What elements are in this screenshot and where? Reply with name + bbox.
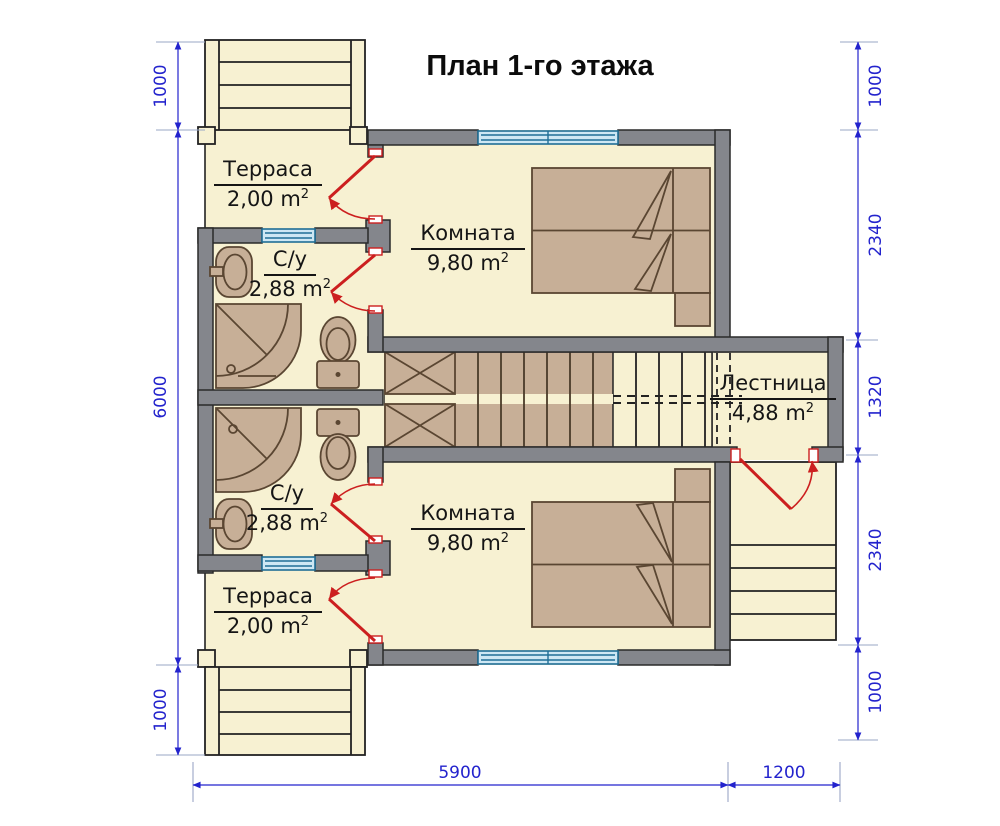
wall-segment	[368, 130, 478, 145]
toilet	[317, 409, 359, 480]
room-label-wc-top: С/у 2,88 m2	[215, 248, 365, 301]
wall-segment	[618, 650, 730, 665]
wall-segment	[315, 228, 368, 243]
porch-post	[350, 650, 367, 667]
stair-gap	[385, 394, 613, 404]
room-area-value: 2,00 m	[227, 614, 301, 638]
room-area: 9,80 m2	[390, 252, 546, 276]
dim-value: 2340	[866, 213, 886, 256]
room-name: Терраса	[214, 585, 322, 613]
window	[262, 557, 315, 570]
steps-outline	[205, 667, 365, 755]
staircase	[385, 352, 742, 447]
wall-pier	[366, 220, 390, 252]
dim-value: 1000	[866, 670, 886, 713]
room-area-sup: 2	[323, 277, 331, 292]
wall-segment	[368, 310, 383, 352]
room-area: 2,00 m2	[190, 615, 346, 639]
window	[262, 229, 315, 242]
room-name: Терраса	[214, 158, 322, 186]
dimension-right: 1000 2340 1320 2340 1000	[858, 42, 886, 740]
wall-segment	[368, 650, 478, 665]
room-area-sup: 2	[320, 511, 328, 526]
window	[478, 131, 618, 144]
wall-segment	[715, 462, 730, 665]
dim-value: 1000	[151, 64, 171, 107]
room-area: 4,88 m2	[700, 402, 846, 426]
room-label-room-bottom: Комната 9,80 m2	[390, 502, 546, 555]
porch-post	[198, 650, 215, 667]
wall-segment	[715, 130, 730, 352]
window	[478, 651, 618, 664]
room-label-terrace-bottom: Терраса 2,00 m2	[190, 585, 346, 638]
floor-plan-drawing: 1000 6000 1000 1000 2340 1320 2340 1000 …	[0, 0, 1000, 826]
page-title: План 1-го этажа	[360, 50, 720, 83]
nightstand	[675, 469, 710, 502]
dim-value: 1000	[866, 64, 886, 107]
floor-plan-page: 1000 6000 1000 1000 2340 1320 2340 1000 …	[0, 0, 1000, 826]
wall-segment	[618, 130, 730, 145]
room-area-sup: 2	[301, 614, 309, 629]
dim-value: 6000	[151, 375, 171, 418]
room-name: Комната	[411, 222, 524, 250]
room-name: Комната	[411, 502, 524, 530]
room-area-value: 2,88 m	[246, 511, 320, 535]
room-label-stairs: Лестница 4,88 m2	[700, 372, 846, 425]
room-area-value: 4,88 m	[732, 401, 806, 425]
stair-flights-above-cut	[613, 352, 712, 447]
wall-segment	[368, 337, 843, 352]
room-label-terrace-top: Терраса 2,00 m2	[190, 158, 346, 211]
dimension-bottom: 5900 1200	[193, 763, 840, 785]
toilet	[317, 317, 359, 388]
dim-value: 2340	[866, 528, 886, 571]
room-area: 9,80 m2	[390, 532, 546, 556]
dim-value: 5900	[438, 763, 481, 783]
wall-segment	[368, 643, 383, 665]
room-name: Лестница	[710, 372, 835, 400]
room-area-value: 9,80 m	[427, 251, 501, 275]
room-area: 2,88 m2	[212, 512, 362, 536]
room-area: 2,88 m2	[215, 278, 365, 302]
room-name: С/у	[261, 482, 313, 510]
dim-value: 1000	[151, 688, 171, 731]
room-area-sup: 2	[501, 251, 509, 266]
wall-segment	[368, 447, 383, 482]
entry-steps-top	[198, 40, 367, 144]
room-area: 2,00 m2	[190, 188, 346, 212]
dim-value: 1320	[866, 375, 886, 418]
room-label-wc-bottom: С/у 2,88 m2	[212, 482, 362, 535]
nightstand	[675, 293, 710, 326]
room-area-value: 2,00 m	[227, 187, 301, 211]
room-name: С/у	[264, 248, 316, 276]
entry-steps-right	[730, 462, 836, 640]
room-label-room-top: Комната 9,80 m2	[390, 222, 546, 275]
room-area-value: 9,80 m	[427, 531, 501, 555]
porch-post	[350, 127, 367, 144]
wall-segment	[198, 555, 262, 571]
wall-segment	[315, 555, 368, 571]
room-area-value: 2,88 m	[249, 277, 323, 301]
room-area-sup: 2	[301, 187, 309, 202]
room-area-sup: 2	[806, 401, 814, 416]
wall-segment	[368, 447, 737, 462]
room-area-sup: 2	[501, 531, 509, 546]
dimension-left: 1000 6000 1000	[151, 42, 178, 755]
wall-segment	[198, 390, 383, 405]
dim-value: 1200	[762, 763, 805, 783]
